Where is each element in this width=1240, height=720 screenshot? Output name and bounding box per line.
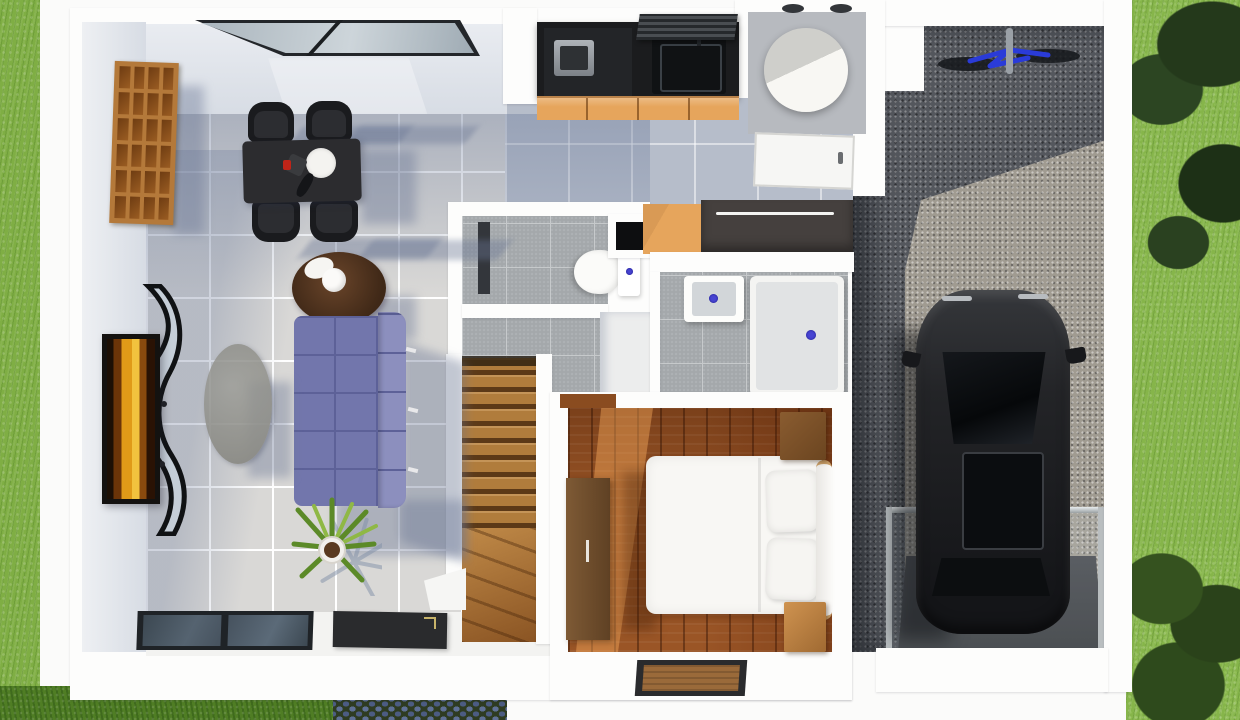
kitchen-partition-wall: [503, 8, 537, 104]
bathroom-wardrobe: [701, 200, 853, 254]
table-red-item: [283, 160, 291, 170]
bedroom-doormat-center: [642, 665, 740, 691]
dining-chair-top-left: [248, 102, 294, 142]
wall-picture-frame: [102, 334, 160, 504]
car-roof-rail-left: [942, 296, 972, 301]
utility-door-handle: [838, 152, 843, 164]
hedge: [1128, 545, 1240, 720]
car-windshield: [938, 352, 1050, 444]
basin-drain: [709, 294, 718, 303]
headboard-roll: [816, 460, 832, 620]
lawn-left: [0, 0, 40, 720]
nightstand-top: [780, 412, 826, 460]
chair-shadow-2: [345, 126, 479, 144]
car-sunroof: [962, 452, 1044, 550]
kitchen-cabinets: [537, 96, 739, 120]
coffee-table: [204, 344, 272, 464]
shower-drain: [806, 330, 816, 340]
nightstand-bottom: [784, 602, 826, 652]
stairs-winder-flight: [462, 528, 538, 642]
chair-shadow-4: [357, 240, 513, 260]
ceiling-vent-2: [830, 4, 852, 13]
cube-shelf: [109, 61, 179, 225]
dining-chair-bottom-left: [252, 200, 300, 242]
pillow-bottom: [765, 537, 819, 601]
bicycle: [930, 28, 1090, 82]
range-hood: [636, 14, 738, 40]
wardrobe-handle: [716, 212, 834, 215]
dining-chair-bottom-right: [310, 200, 358, 242]
ceiling-vent-1: [782, 4, 804, 13]
stairs-top-shadow: [462, 356, 536, 366]
sofa-backrest: [378, 312, 406, 508]
pot-lid: [560, 46, 588, 70]
dresser-handle: [586, 540, 589, 562]
bathroom-wall-left: [650, 272, 660, 408]
dining-chair-top-right: [306, 101, 352, 141]
bathroom-cabinet-orange: [643, 204, 701, 254]
stairs-straight-flight: [462, 358, 536, 528]
toilet-flush-button: [626, 268, 633, 275]
shower-tray-inner: [756, 282, 838, 390]
hall-niche-dark: [616, 222, 644, 250]
entry-mat-corner-mark: [424, 617, 436, 629]
carport-wall-right: [1104, 0, 1132, 692]
shelf-shadow: [174, 86, 204, 234]
table-pitcher: [322, 268, 346, 292]
sliding-window-glass-left: [142, 615, 221, 646]
carport-wall-bottom: [876, 648, 1108, 692]
car-rear-window: [932, 558, 1050, 596]
pillow-top: [765, 469, 819, 533]
dining-table-shadow: [362, 150, 416, 224]
bedroom-door-opening: [560, 394, 616, 408]
bathroom-wall-top: [650, 252, 854, 272]
car-roof-rail-right: [1018, 294, 1048, 299]
water-tank-cylinder: [764, 28, 848, 112]
sliding-window-glass-right: [227, 615, 308, 646]
floorplan-render: [0, 0, 1240, 720]
glass-railing-post-left: [886, 507, 892, 652]
kitchen-sink-rim: [660, 44, 722, 92]
potted-plant: [290, 496, 382, 596]
sofa-seat-cushions: [294, 316, 378, 506]
wc-inner-wall: [462, 304, 608, 318]
carport-wall-top: [876, 0, 1108, 26]
tree-canopy: [1128, 0, 1240, 340]
bed-sheet-seam: [758, 458, 761, 612]
